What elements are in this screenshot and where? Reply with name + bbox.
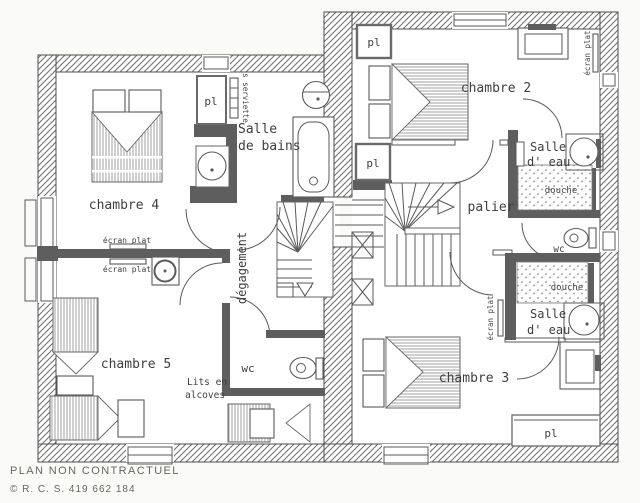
floor-plan-drawing: chambre 4 chambre 5 chambre 2 chambre 3 … — [0, 0, 640, 503]
label-salle-eau-top-1: Salle — [530, 140, 566, 154]
window-bathroom-top — [202, 55, 230, 72]
niche-sink-icon — [196, 146, 229, 187]
window-right-1 — [600, 72, 618, 88]
label-seche-serviette: s serviette — [241, 73, 250, 123]
label-palier: palier — [468, 200, 515, 215]
label-chambre2: chambre 2 — [461, 81, 531, 96]
footer: PLAN NON CONTRACTUEL © R. C. S. 419 662 … — [10, 465, 180, 495]
desk-chambre2-icon — [518, 24, 568, 59]
bathroom-sink-icon — [303, 82, 330, 109]
label-ecran-plat-ch5: écran plat — [103, 264, 151, 274]
label-salle-de-bains-2: de bains — [238, 139, 301, 154]
copyright-text: © R. C. S. 419 662 184 — [10, 484, 136, 495]
desk-chambre3-icon — [560, 342, 601, 389]
label-pl-chambre4: pl — [204, 95, 217, 108]
wall-left-bottom — [38, 444, 340, 462]
wall-left-top — [38, 55, 340, 72]
label-douche-bottom: douche — [551, 283, 584, 293]
label-chambre3: chambre 3 — [439, 371, 509, 386]
tv-chambre2-icon — [593, 34, 598, 72]
staircase-main — [385, 183, 460, 286]
label-ecran-plat-ch4: écran plat — [103, 235, 151, 245]
label-salle-eau-bottom-1: Salle — [530, 307, 566, 321]
window-left-1 — [25, 196, 56, 250]
wall-right-bottom — [324, 444, 618, 462]
single-bed-1-icon — [53, 298, 98, 395]
floor-plan-page: chambre 4 chambre 5 chambre 2 chambre 3 … — [0, 0, 640, 503]
single-bed-2-icon — [50, 396, 144, 440]
label-lits-alcoves-1: Lits en — [187, 377, 227, 388]
label-pl-chambre2-top: pl — [367, 36, 380, 49]
label-chambre5: chambre 5 — [101, 357, 171, 372]
window-left-2 — [25, 256, 56, 303]
label-douche-top: douche — [545, 186, 578, 196]
label-ecran-plat-ch2: écran plat — [583, 30, 592, 75]
label-ecran-plat-ch3: écran plat — [486, 295, 495, 340]
label-chambre4: chambre 4 — [89, 198, 160, 213]
label-wc-center: wc — [241, 362, 254, 375]
label-salle-eau-top-2: d' eau — [527, 155, 570, 169]
label-pl-chambre2-bottom: pl — [366, 157, 379, 170]
window-bottom-left — [126, 444, 174, 464]
window-top-right — [452, 12, 508, 29]
door-leaf-salle-eau-top — [516, 142, 524, 166]
bathtub-icon — [293, 117, 334, 197]
label-salle-eau-bottom-2: d' eau — [527, 323, 570, 337]
towel-radiator-icon — [230, 78, 238, 118]
disclaimer-text: PLAN NON CONTRACTUEL — [10, 465, 180, 477]
tv-chambre3-icon — [498, 300, 503, 336]
window-bottom-right — [382, 444, 430, 464]
label-salle-de-bains-1: Salle — [238, 122, 277, 137]
window-right-2 — [600, 230, 618, 252]
tv-chambre5-icon — [110, 259, 146, 264]
label-lits-alcoves-2: alcoves — [185, 390, 225, 401]
toilet-center-icon — [290, 358, 323, 380]
chambre5-sink-icon — [152, 257, 179, 285]
label-degagement: dégagement — [235, 232, 249, 304]
toilet-right-icon — [564, 228, 596, 248]
label-pl-chambre3: pl — [544, 427, 557, 440]
label-wc-right: wc — [553, 244, 564, 255]
